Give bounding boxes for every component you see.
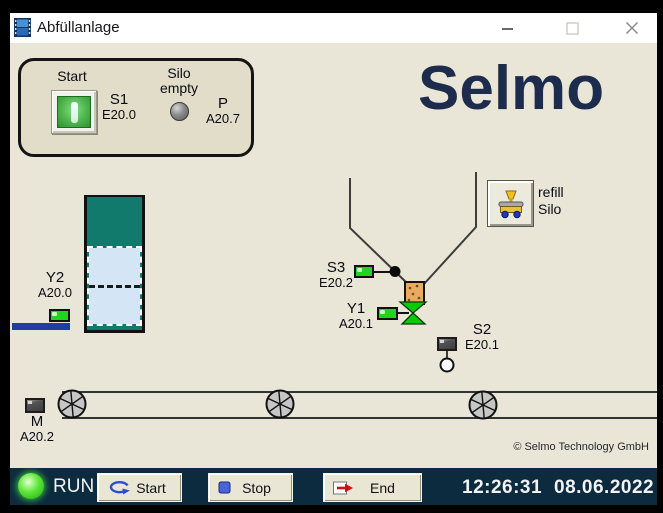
- run-status-label: RUN: [53, 476, 94, 498]
- maximize-button[interactable]: [555, 13, 589, 43]
- footer-stop-button[interactable]: Stop: [208, 473, 293, 502]
- valve-lower-icon: [402, 313, 425, 324]
- close-icon: [625, 21, 639, 35]
- s2-probe-tip: [441, 359, 454, 372]
- y2-indicator: [49, 309, 70, 322]
- y2-tag: Y2 A20.0: [25, 270, 85, 300]
- silo-level-divider: [89, 285, 140, 288]
- stop-square-icon: [218, 481, 231, 494]
- y1-indicator: [377, 307, 398, 320]
- minimize-button[interactable]: [490, 13, 524, 43]
- conveyor-roller-2: [267, 391, 294, 418]
- loop-arrow-icon: [107, 479, 131, 496]
- clock: 12:26:31: [462, 477, 542, 499]
- conveyor-roller-3: [470, 392, 497, 419]
- copyright: © Selmo Technology GmbH: [513, 441, 649, 453]
- s2-sensor-box: [437, 337, 457, 351]
- app-window: Abfüllanlage Start S1 E20.0: [10, 13, 657, 505]
- m-motor-box: [25, 398, 45, 413]
- refill-cart-icon: [495, 189, 527, 219]
- footer-end-button[interactable]: End: [323, 473, 422, 502]
- maximize-icon: [566, 22, 579, 35]
- outlet-bar: [12, 323, 70, 330]
- minimize-icon: [501, 22, 514, 35]
- fill-tube: [405, 282, 424, 304]
- m-tag: M A20.2: [10, 414, 64, 444]
- footer: RUN Start Stop: [10, 468, 657, 505]
- s3-indicator: [354, 265, 374, 278]
- exit-door-icon: [333, 481, 354, 495]
- app-icon: [14, 18, 31, 37]
- hopper-right-wall: [424, 172, 476, 284]
- date: 08.06.2022: [554, 477, 654, 499]
- window-title: Abfüllanlage: [37, 19, 120, 36]
- s3-attach-dot: [390, 266, 401, 277]
- footer-start-button[interactable]: Start: [97, 473, 182, 502]
- valve-upper-icon: [400, 302, 426, 313]
- plant-view: Start S1 E20.0 Silo empty P A20.7 Selmo: [10, 43, 657, 468]
- refill-silo-label: refill Silo: [538, 184, 564, 218]
- s2-tag: S2 E20.1: [452, 322, 512, 352]
- run-lamp: [18, 473, 44, 499]
- titlebar: Abfüllanlage: [10, 13, 657, 43]
- close-button[interactable]: [615, 13, 649, 43]
- refill-silo-button[interactable]: [487, 180, 534, 227]
